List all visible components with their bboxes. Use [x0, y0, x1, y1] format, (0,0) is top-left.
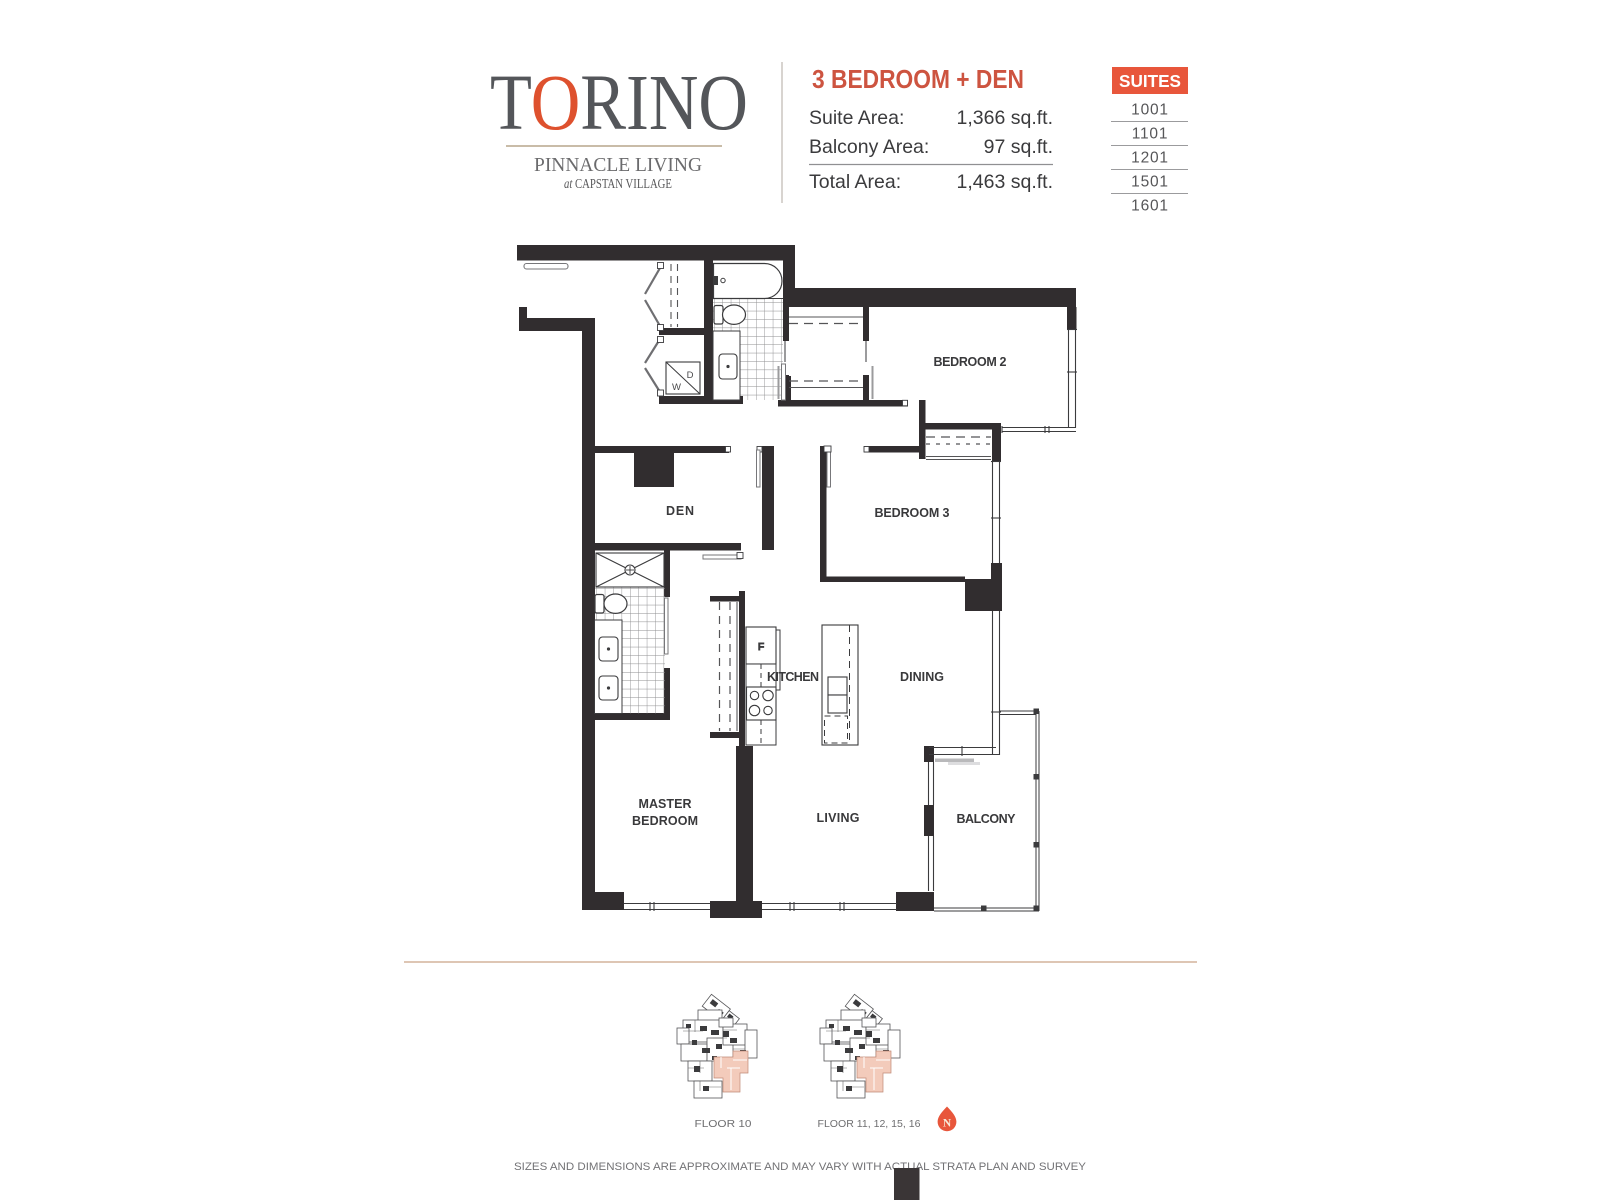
svg-text:1101: 1101 — [1132, 126, 1169, 143]
svg-text:BEDROOM 3: BEDROOM 3 — [875, 506, 950, 520]
svg-text:at CAPSTAN VILLAGE: at CAPSTAN VILLAGE — [564, 176, 672, 191]
svg-text:3 BEDROOM + DEN: 3 BEDROOM + DEN — [812, 66, 1024, 94]
svg-text:SIZES AND DIMENSIONS ARE APPRO: SIZES AND DIMENSIONS ARE APPROXIMATE AND… — [514, 1161, 1086, 1173]
svg-text:1,366 sq.ft.: 1,366 sq.ft. — [957, 107, 1053, 129]
svg-text:Suite Area:: Suite Area: — [809, 107, 904, 129]
svg-text:DINING: DINING — [900, 670, 944, 684]
svg-text:1201: 1201 — [1131, 150, 1169, 167]
svg-text:1601: 1601 — [1131, 198, 1169, 215]
svg-text:DEN: DEN — [666, 504, 694, 518]
svg-text:LIVING: LIVING — [817, 811, 860, 825]
svg-text:97 sq.ft.: 97 sq.ft. — [984, 136, 1053, 158]
svg-text:1,463 sq.ft.: 1,463 sq.ft. — [957, 171, 1053, 193]
svg-text:TORINO: TORINO — [490, 60, 748, 147]
svg-text:MASTER: MASTER — [639, 797, 692, 811]
svg-text:F: F — [758, 642, 764, 653]
svg-text:D: D — [687, 370, 694, 381]
svg-text:PINNACLE LIVING: PINNACLE LIVING — [534, 155, 702, 176]
svg-text:BALCONY: BALCONY — [957, 812, 1017, 826]
svg-text:BEDROOM 2: BEDROOM 2 — [934, 355, 1007, 369]
svg-text:FLOOR 11, 12, 15, 16: FLOOR 11, 12, 15, 16 — [818, 1118, 921, 1130]
svg-text:1501: 1501 — [1131, 174, 1169, 191]
svg-text:BEDROOM: BEDROOM — [632, 814, 698, 828]
svg-text:W: W — [672, 382, 681, 393]
svg-text:1001: 1001 — [1131, 102, 1169, 119]
svg-text:Total Area:: Total Area: — [809, 171, 901, 193]
svg-text:Balcony Area:: Balcony Area: — [809, 136, 929, 158]
svg-text:FLOOR 10: FLOOR 10 — [695, 1118, 752, 1130]
svg-text:SUITES: SUITES — [1119, 71, 1181, 91]
svg-text:KITCHEN: KITCHEN — [767, 670, 819, 684]
svg-text:N: N — [943, 1118, 952, 1130]
